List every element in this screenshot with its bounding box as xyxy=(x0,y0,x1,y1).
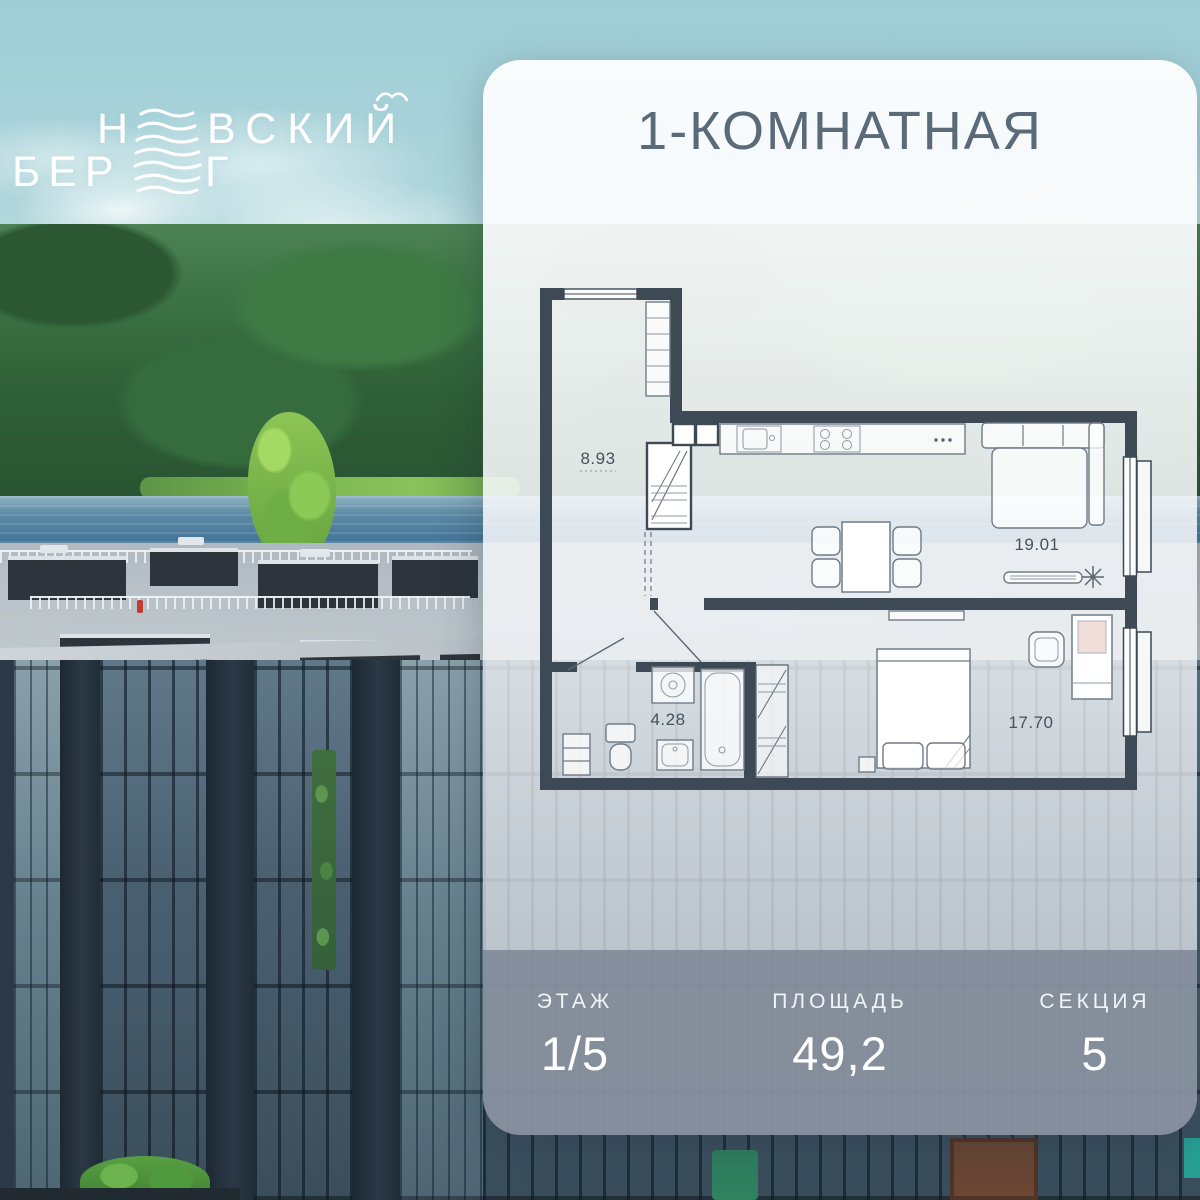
nevsky-bereg-logo: Н ВСКИЙ БЕР Г xyxy=(0,80,480,210)
stat-section: СЕКЦИЯ 5 xyxy=(1003,990,1187,1081)
area-hallway: 8.93 xyxy=(580,449,615,468)
listing-flyer: Н ВСКИЙ БЕР Г 1-КОМНАТНАЯ xyxy=(0,0,1200,1200)
stat-area: ПЛОЩАДЬ 49,2 xyxy=(743,990,937,1081)
wardrobe xyxy=(756,665,788,777)
card-footer: ЭТАЖ 1/5 ПЛОЩАДЬ 49,2 СЕКЦИЯ 5 xyxy=(483,950,1197,1135)
stat-section-label: СЕКЦИЯ xyxy=(1003,990,1187,1014)
apartment-card: 1-КОМНАТНАЯ xyxy=(483,60,1197,1135)
person-on-roof xyxy=(137,600,143,613)
bathtub xyxy=(701,669,744,770)
dining-table xyxy=(842,522,890,592)
window-wall xyxy=(254,660,352,1200)
logo-word1-start: Н xyxy=(97,108,128,151)
roof-vent-cap xyxy=(300,549,330,557)
living-window xyxy=(1124,457,1152,576)
fridge-cabinets xyxy=(673,424,718,445)
logo-word2-start: БЕР xyxy=(12,151,122,194)
washing-machine xyxy=(652,667,694,703)
facade-pier xyxy=(352,660,400,1200)
rug xyxy=(1004,572,1082,583)
roof-box xyxy=(150,548,238,586)
stat-floor: ЭТАЖ 1/5 xyxy=(483,990,667,1081)
toilet xyxy=(606,724,635,742)
balcony-glass xyxy=(14,660,60,1200)
seagull-icon xyxy=(374,86,410,104)
entrance-door-photo xyxy=(950,1138,1038,1200)
roof-box xyxy=(392,556,478,598)
hall-wardrobe xyxy=(646,302,670,396)
window-wall xyxy=(100,660,206,1200)
area-bathroom: 4.28 xyxy=(650,710,685,729)
wave-lines-icon xyxy=(133,106,203,194)
door-swings xyxy=(568,611,701,670)
hall-closet xyxy=(647,443,691,529)
wall-shelf xyxy=(889,611,964,620)
area-living: 19.01 xyxy=(1014,535,1059,554)
bedroom-window xyxy=(1124,628,1152,736)
roof-railing xyxy=(30,596,470,609)
sofa xyxy=(982,423,1104,528)
stat-area-label: ПЛОЩАДЬ xyxy=(743,990,937,1014)
roof-box xyxy=(8,556,126,600)
teal-accent xyxy=(1184,1138,1200,1178)
plant-icon xyxy=(1082,566,1104,588)
window-wall xyxy=(400,660,483,1200)
opening-dashed xyxy=(645,532,651,596)
roof-vent-cap xyxy=(178,537,204,545)
stool xyxy=(1029,632,1064,667)
roof-vent-cap xyxy=(40,545,68,553)
bedroom-furniture xyxy=(859,611,1112,772)
kitchen-counter xyxy=(720,424,965,454)
green-container xyxy=(712,1150,758,1200)
facade-pier xyxy=(206,660,254,1200)
stat-section-value: 5 xyxy=(1003,1026,1187,1081)
stat-area-value: 49,2 xyxy=(743,1026,937,1081)
green-planted-wall xyxy=(312,750,336,970)
shelf-stack xyxy=(563,734,590,775)
facade-pier xyxy=(60,660,100,1200)
logo-word2-end: Г xyxy=(205,151,228,194)
area-bedroom: 17.70 xyxy=(1008,713,1053,732)
ground-strip xyxy=(0,1188,240,1200)
logo-word1-end: ВСКИЙ xyxy=(207,108,407,151)
stat-floor-value: 1/5 xyxy=(483,1026,667,1081)
stat-floor-label: ЭТАЖ xyxy=(483,990,667,1014)
floor-plan: 8.93 19.01 4.28 17.70 xyxy=(540,288,1155,790)
card-title: 1-КОМНАТНАЯ xyxy=(483,100,1197,162)
dining-set xyxy=(812,522,921,592)
